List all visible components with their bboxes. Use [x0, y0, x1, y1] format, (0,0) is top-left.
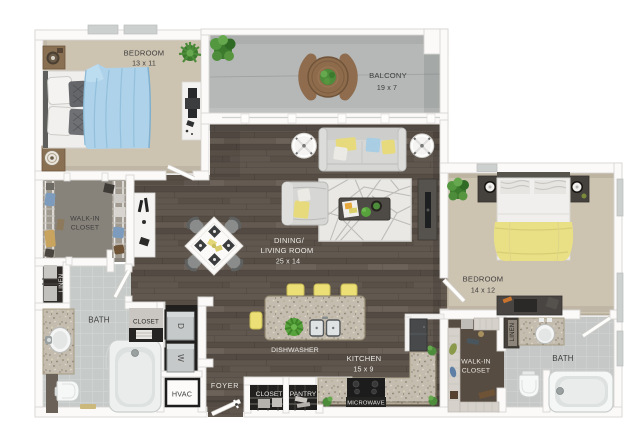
svg-text:HVAC: HVAC: [172, 390, 192, 399]
svg-text:LINEN: LINEN: [59, 274, 65, 293]
svg-text:PANTRY: PANTRY: [290, 391, 317, 398]
svg-text:BATH: BATH: [88, 316, 110, 325]
svg-text:W: W: [176, 354, 185, 362]
svg-text:14 x 12: 14 x 12: [471, 288, 495, 295]
svg-text:KITCHEN: KITCHEN: [347, 354, 382, 363]
svg-text:DISHWASHER: DISHWASHER: [271, 347, 319, 354]
svg-text:25 x 14: 25 x 14: [276, 259, 300, 266]
svg-text:CLOSET: CLOSET: [133, 319, 159, 326]
svg-text:D: D: [176, 323, 185, 329]
svg-text:BEDROOM: BEDROOM: [124, 49, 165, 58]
svg-text:DINING/: DINING/: [274, 236, 305, 245]
svg-text:LIVING ROOM: LIVING ROOM: [261, 246, 314, 255]
svg-text:WALK-IN: WALK-IN: [70, 216, 99, 223]
svg-text:LINEN: LINEN: [510, 323, 516, 342]
svg-text:BATH: BATH: [552, 354, 574, 363]
svg-text:MICROWAVE: MICROWAVE: [347, 401, 385, 407]
svg-text:BEDROOM: BEDROOM: [463, 275, 504, 284]
svg-text:15 x 9: 15 x 9: [353, 367, 373, 374]
svg-text:WALK-IN: WALK-IN: [461, 359, 490, 366]
svg-text:CLOSET: CLOSET: [71, 225, 99, 232]
svg-text:FOYER: FOYER: [211, 381, 239, 390]
svg-text:13 x 11: 13 x 11: [132, 61, 156, 68]
svg-text:BALCONY: BALCONY: [369, 71, 407, 80]
svg-text:CLOSET: CLOSET: [462, 368, 490, 375]
svg-text:CLOSET: CLOSET: [256, 391, 283, 398]
svg-text:19 x 7: 19 x 7: [377, 85, 397, 92]
